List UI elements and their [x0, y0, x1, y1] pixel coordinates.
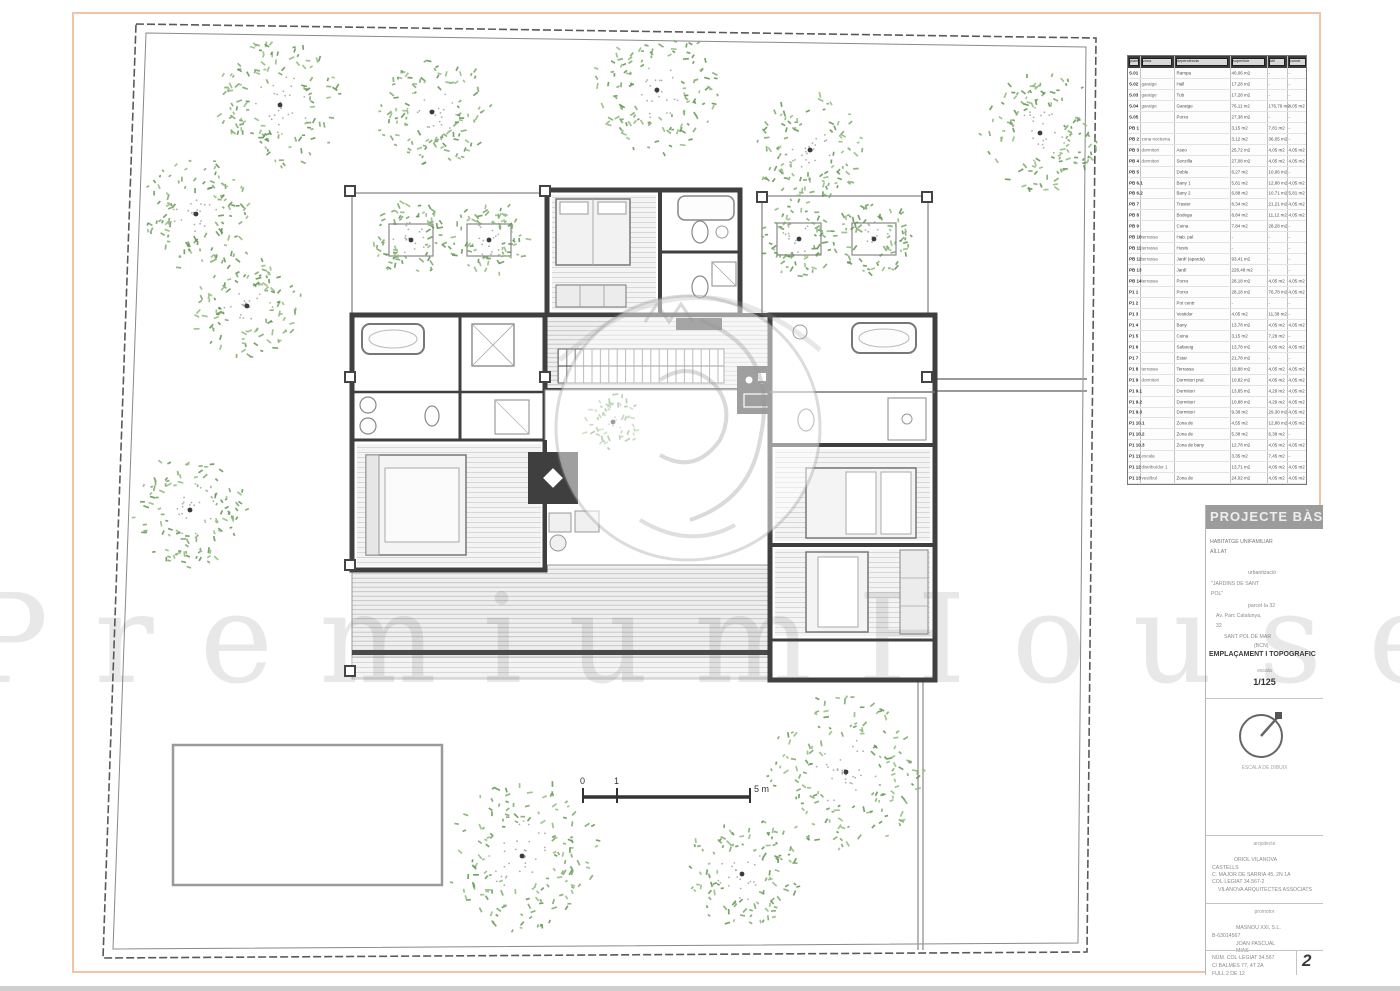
area-table-row: P1 9.1Dormitori13,85 m24,29 m24,05 m2 — [1128, 386, 1306, 397]
location-line: parcel·la 32 — [1248, 603, 1323, 609]
title-block-divider — [1206, 698, 1323, 699]
area-table-header-cell: dependència — [1177, 59, 1198, 63]
area-table-row: P1 7Estar21,78 m2-- — [1128, 353, 1306, 364]
area-table-row: P1 4Bany13,78 m24,05 m24,05 m2 — [1128, 320, 1306, 331]
wardrobe-b — [900, 550, 928, 634]
area-table-row: P1 12distribuïdor 113,71 m24,05 m24,05 m… — [1128, 462, 1306, 473]
area-table-header-cell: zona — [1143, 59, 1155, 63]
area-table-row: P1 9.2Dormitori10,88 m24,29 m24,05 m2 — [1128, 397, 1306, 408]
area-table-row: PB 6.2Bany 26,88 m210,71 m25,81 m2 — [1128, 188, 1306, 199]
area-table-row: P1 6Safareig13,78 m24,05 m24,05 m2 — [1128, 342, 1306, 353]
north-arrow-caption: ESCALA DE DIBUIX — [1206, 765, 1323, 771]
promoter-line: MASNOU XXI, S.L. — [1236, 925, 1323, 931]
location-line: 32 — [1216, 623, 1323, 629]
area-table-header-cell: superfície — [1233, 59, 1246, 63]
area-table-row: P1 1Porxo28,18 m276,78 m24,05 m2 — [1128, 287, 1306, 298]
promoter-line: B-63014567 — [1212, 933, 1323, 939]
area-table-row: P1 8terrassaTerrassa19,88 m24,05 m24,05 … — [1128, 364, 1306, 375]
scale-label: escala — [1235, 668, 1294, 674]
area-table-row: P1 10.2Zona de5,38 m26,38 m2- — [1128, 429, 1306, 440]
area-table-row: PB 6.1Bany 15,81 m212,88 m24,05 m2 — [1128, 178, 1306, 189]
area-table-row: P1 13vestíbulZona de24,02 m24,05 m24,05 … — [1128, 473, 1306, 484]
area-table-row: P1 9dormitoriDormitori pral.10,82 m24,05… — [1128, 375, 1306, 386]
shower-left — [472, 324, 514, 366]
architect-section-label: arquitecte — [1206, 841, 1323, 847]
architect-line: COL·LEGIAT 34.567-2 — [1212, 879, 1323, 885]
bed-a — [806, 468, 916, 538]
area-table-row: S.03garatgeTub17,28 m2-- — [1128, 90, 1306, 101]
area-table-row: PB 14terrassaPorxo28,18 m24,05 m24,05 m2 — [1128, 276, 1306, 287]
location-line: (BCN) — [1254, 643, 1323, 649]
bathtub-right — [852, 323, 916, 353]
area-table-row: P1 3Vestidor4,05 m211,38 m2- — [1128, 309, 1306, 320]
page-number: 2 — [1302, 951, 1311, 971]
bed-master — [366, 455, 466, 555]
closet — [556, 285, 626, 307]
north-arrow — [1236, 705, 1290, 761]
drawing-title: EMPLAÇAMENT I TOPOGRAFIC — [1209, 651, 1316, 658]
architect-line: VILANOVA ARQUITECTES ASSOCIATS — [1218, 887, 1323, 893]
bathtub-left — [362, 324, 424, 354]
title-block-header: PROJECTE BÀSIC — [1206, 505, 1323, 529]
location-line: POL" — [1211, 591, 1323, 597]
bed-top — [556, 199, 630, 265]
title-block-divider — [1206, 903, 1323, 904]
logo-watermark — [556, 296, 820, 560]
location-line: SANT POL DE MAR — [1224, 634, 1323, 640]
architect-line: ORIOL VILANOVA — [1234, 857, 1323, 863]
area-table-row: P1 9.3Dormitori9,38 m229,30 m24,05 m2 — [1128, 407, 1306, 418]
area-table-row: S.04garatgeGaratge76,11 m2176,76 m24,05 … — [1128, 101, 1306, 112]
area-table-row: PB 13,15 m27,81 m2- — [1128, 123, 1306, 134]
area-table-row: P1 11escala3,35 m27,45 m2- — [1128, 451, 1306, 462]
page-number-box-divider — [1296, 950, 1297, 975]
scale-bar-label-5m: 5 m — [754, 784, 769, 794]
area-table-row: PB 5Doble6,27 m210,06 m2- — [1128, 167, 1306, 178]
area-table-header-cell: útil — [1270, 59, 1276, 63]
owner-line: HABITATGE UNIFAMILIAR — [1210, 539, 1323, 545]
area-table-row: PB 9Cuina7,84 m228,28 m2- — [1128, 221, 1306, 232]
area-table-row: S.02garatgeHall17,28 m2-- — [1128, 79, 1306, 90]
pool — [173, 745, 442, 885]
left-wing — [352, 315, 545, 570]
area-table-row: PB 10terrassaHab. pal--- — [1128, 232, 1306, 243]
footer-line: FULL 2 DE 12 — [1212, 971, 1323, 975]
location-line: urbanització — [1248, 570, 1323, 576]
area-table-row: PB 13Jardí228,48 m2-- — [1128, 265, 1306, 276]
location-line: "JARDINS DE SANT — [1211, 581, 1323, 587]
architect-line: CASTELLS — [1212, 865, 1323, 871]
promoter-line: JOAN PASCUAL — [1236, 941, 1323, 947]
area-table-row: PB 3dormitoriAseo25,72 m24,05 m24,05 m2 — [1128, 145, 1306, 156]
scale-bar-label-0: 0 — [580, 776, 585, 786]
area-table-row: PB 8Bodega8,84 m211,12 m24,05 m2 — [1128, 210, 1306, 221]
area-table-row: P1 10.3Zona de bany12,78 m24,05 m24,05 m… — [1128, 440, 1306, 451]
promoter-section-label: promotor — [1206, 909, 1323, 915]
scale-value: 1/125 — [1206, 677, 1323, 687]
scanned-site-plan-sheet: { "sheet": { "page_number": "2" }, "wate… — [0, 0, 1400, 991]
location-line: Av. Parc Catalunya, — [1216, 613, 1323, 619]
area-table-row: S.01Rampa40,06 m2-- — [1128, 68, 1306, 79]
area-table-header-cell: planta — [1130, 59, 1133, 63]
area-table-row: PB 2zona nocturna3,12 m236,05 m2- — [1128, 134, 1306, 145]
area-table-row: P1 10.1Zona de4,55 m212,88 m24,05 m2 — [1128, 418, 1306, 429]
owner-line: AÏLLAT — [1210, 549, 1323, 555]
area-table-row: S.05Porxo27,38 m2-- — [1128, 112, 1306, 123]
area-table-row: PB 12terrassaJardí (aparda)93,41 m2-- — [1128, 254, 1306, 265]
bed-b — [806, 552, 868, 632]
title-block: PROJECTE BÀSIC HABITATGE UNIFAMILIAR AÏL… — [1205, 505, 1323, 975]
area-table-header-cell: constr. — [1290, 59, 1296, 63]
area-table-row: PB 11terrassaHosts--- — [1128, 243, 1306, 254]
area-table-row: P1 5Cuina3,15 m27,28 m2- — [1128, 331, 1306, 342]
title-block-divider — [1206, 835, 1323, 836]
room-area-table: planta zona dependència superfície útil … — [1127, 55, 1307, 485]
area-table-row: P1 2Pot centr--- — [1128, 298, 1306, 309]
area-table-row: PB 4dormitoriSenzilla27,08 m24,05 m24,05… — [1128, 156, 1306, 167]
scale-bar-label-1: 1 — [614, 776, 619, 786]
area-table-header: planta zona dependència superfície útil … — [1128, 56, 1306, 68]
scan-edge-artifact — [0, 986, 1400, 991]
area-table-row: PB 7Traster8,34 m221,21 m24,05 m2 — [1128, 199, 1306, 210]
architect-line: C. MAJOR DE SARRIA 45, 2N 1A — [1212, 872, 1323, 878]
